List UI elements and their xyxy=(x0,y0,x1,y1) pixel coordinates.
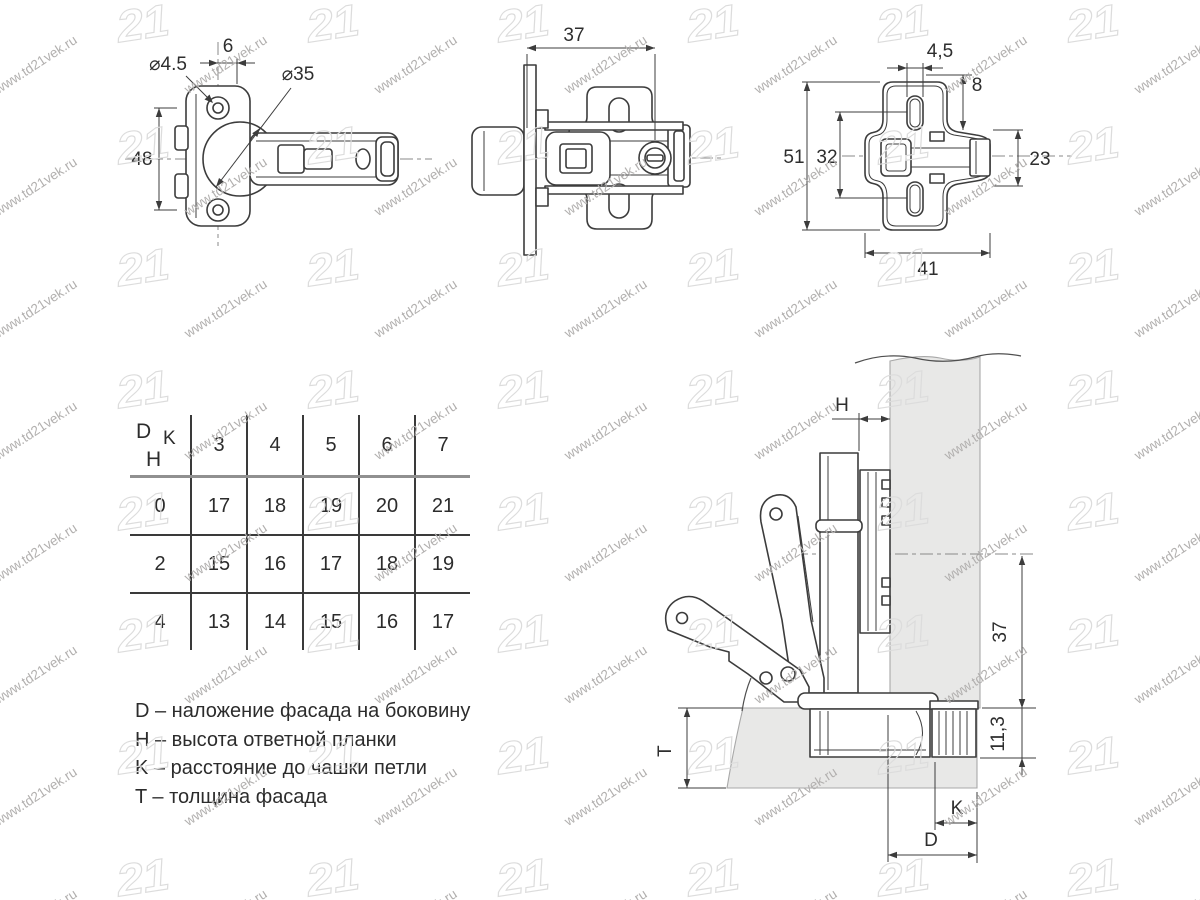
column-header: 3 xyxy=(191,415,247,477)
watermark-text: www.td21vek.ru xyxy=(1132,154,1200,218)
dim-label: H xyxy=(835,395,849,416)
table-row: 4 13 14 15 16 17 xyxy=(130,593,470,650)
table-cell: 18 xyxy=(247,477,303,536)
watermark-text: www.td21vek.ru xyxy=(1132,642,1200,706)
mounting-plate-drawing: 4,5 8 51 32 23 41 xyxy=(780,5,1080,285)
dim-label: 6 xyxy=(223,36,234,57)
slot-hole xyxy=(907,96,923,130)
watermark-text: www.td21vek.ru xyxy=(0,276,80,340)
watermark-text: www.td21vek.ru xyxy=(0,520,80,584)
corner-d-label: D xyxy=(136,420,151,444)
watermark-text: www.td21vek.ru xyxy=(182,276,270,340)
table-cell: 20 xyxy=(359,477,415,536)
adjustment-screw xyxy=(816,520,862,532)
table-header-row: D K H 3 4 5 6 7 xyxy=(130,415,470,477)
watermark-text: www.td21vek.ru xyxy=(1132,276,1200,340)
dim-label: 4,5 xyxy=(927,41,953,62)
legend-item: D – наложение фасада на боковину xyxy=(135,697,470,726)
watermark-text: www.td21vek.ru xyxy=(1132,520,1200,584)
hinge-arm-profile xyxy=(820,453,858,693)
side-view-drawing: 37 xyxy=(470,10,730,260)
hinge-technical-drawing-sheet: 6 ⌀4.5 ⌀35 48 xyxy=(0,0,1200,900)
table-cell: 14 xyxy=(247,593,303,650)
legend-item: T – толщина фасада xyxy=(135,783,470,812)
table-row: 0 17 18 19 20 21 xyxy=(130,477,470,536)
dim-label: T xyxy=(655,745,676,757)
column-header: 6 xyxy=(359,415,415,477)
legend-item: H – высота ответной планки xyxy=(135,726,470,755)
corner-k-label: K xyxy=(163,428,176,450)
table-corner-cell: D K H xyxy=(130,415,191,477)
table-cell: 19 xyxy=(415,535,470,593)
table-cell: 15 xyxy=(303,593,359,650)
slot-hole xyxy=(907,182,923,216)
column-header: 5 xyxy=(303,415,359,477)
row-header: 2 xyxy=(130,535,191,593)
corner-h-label: H xyxy=(146,448,161,472)
column-header: 4 xyxy=(247,415,303,477)
watermark-logo: 21 xyxy=(116,358,171,419)
watermark-logo: 21 xyxy=(496,480,551,541)
watermark-text: www.td21vek.ru xyxy=(1132,886,1200,900)
watermark-logo: 21 xyxy=(496,846,551,900)
row-header: 4 xyxy=(130,593,191,650)
dim-label: ⌀4.5 xyxy=(149,54,187,75)
table-cell: 16 xyxy=(359,593,415,650)
dim-label: D xyxy=(924,830,938,851)
dim-label: K xyxy=(951,798,964,819)
row-header: 0 xyxy=(130,477,191,536)
watermark-text: www.td21vek.ru xyxy=(1132,32,1200,96)
mounting-plate-profile xyxy=(860,470,890,633)
watermark-logo: 21 xyxy=(306,358,361,419)
door-panel xyxy=(524,65,536,255)
table-cell: 17 xyxy=(191,477,247,536)
dim-label: 23 xyxy=(1029,149,1050,170)
cup-flange xyxy=(798,693,938,709)
watermark-text: www.td21vek.ru xyxy=(372,276,460,340)
watermark-logo: 21 xyxy=(496,602,551,663)
watermark-text: www.td21vek.ru xyxy=(0,32,80,96)
table-cell: 13 xyxy=(191,593,247,650)
watermark-text: www.td21vek.ru xyxy=(1132,764,1200,828)
watermark-text: www.td21vek.ru xyxy=(0,642,80,706)
front-view-drawing: 6 ⌀4.5 ⌀35 48 xyxy=(120,10,440,270)
watermark-text: www.td21vek.ru xyxy=(1132,398,1200,462)
legend-item: K – расстояние до чашки петли xyxy=(135,754,470,783)
watermark-text: www.td21vek.ru xyxy=(0,154,80,218)
watermark-text: www.td21vek.ru xyxy=(0,764,80,828)
watermark-text: www.td21vek.ru xyxy=(372,886,460,900)
watermark-logo: 21 xyxy=(116,846,171,900)
table-cell: 15 xyxy=(191,535,247,593)
dim-label: 8 xyxy=(972,75,983,96)
section-view-drawing: H 37 11,3 T K D xyxy=(630,330,1110,890)
dim-label: 41 xyxy=(917,259,938,280)
dim-label: ⌀35 xyxy=(282,64,315,85)
watermark-text: www.td21vek.ru xyxy=(0,398,80,462)
table-cell: 21 xyxy=(415,477,470,536)
dim-label: 51 xyxy=(783,147,804,168)
table-cell: 16 xyxy=(247,535,303,593)
overlay-dimension-table: D K H 3 4 5 6 7 0 17 18 19 20 21 2 15 xyxy=(130,415,470,650)
cabinet-side-panel xyxy=(890,357,980,708)
table-cell: 17 xyxy=(303,535,359,593)
watermark-logo: 21 xyxy=(496,358,551,419)
table-cell: 19 xyxy=(303,477,359,536)
dim-label: 32 xyxy=(816,147,837,168)
table-cell: 18 xyxy=(359,535,415,593)
legend: D – наложение фасада на боковину H – выс… xyxy=(135,697,470,811)
hinge-cup xyxy=(472,127,524,195)
watermark-logo: 21 xyxy=(496,724,551,785)
watermark-logo: 21 xyxy=(306,846,361,900)
dim-label: 48 xyxy=(131,149,152,170)
watermark-text: www.td21vek.ru xyxy=(182,886,270,900)
table-row: 2 15 16 17 18 19 xyxy=(130,535,470,593)
watermark-text: www.td21vek.ru xyxy=(0,886,80,900)
dim-label: 37 xyxy=(563,25,584,46)
table-cell: 17 xyxy=(415,593,470,650)
column-header: 7 xyxy=(415,415,470,477)
dim-label: 11,3 xyxy=(988,716,1009,752)
dim-label: 37 xyxy=(990,621,1011,642)
